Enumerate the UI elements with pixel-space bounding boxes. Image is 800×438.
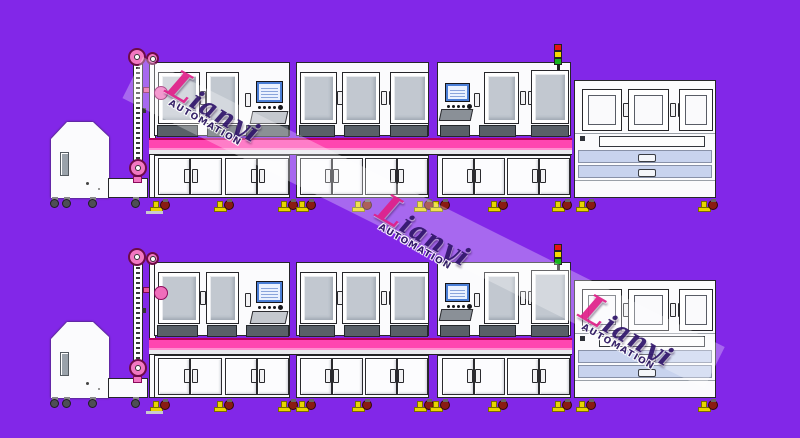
lower-module-2 — [296, 155, 429, 198]
lower-window-panel — [390, 125, 428, 137]
station-rail-line — [575, 380, 715, 381]
drawer-handle — [638, 169, 656, 177]
tower-pole — [557, 265, 560, 270]
upper-module-3 — [437, 262, 571, 336]
door-handle — [184, 169, 190, 183]
door-handle — [259, 169, 265, 183]
caster-wheel — [488, 198, 508, 212]
lower-window-panel — [344, 125, 380, 137]
elevator-sensor — [142, 108, 146, 113]
elevator-column — [133, 56, 143, 170]
door-handle — [467, 169, 473, 183]
hmi-screen — [256, 281, 283, 303]
tower-pole — [557, 65, 560, 70]
door-handle — [381, 291, 387, 305]
hmi-buttons — [258, 105, 283, 110]
door-handle-pair — [390, 169, 404, 183]
station-latch — [580, 136, 585, 141]
machine-window — [532, 71, 568, 123]
production-line — [0, 242, 800, 437]
hopper-sight-slot — [60, 352, 69, 376]
elevator-mount — [133, 376, 142, 383]
tower-lamp-yellow — [554, 51, 562, 58]
elevator-pulley-top — [128, 248, 146, 266]
hopper-sight-slot — [60, 152, 69, 176]
door-handle — [259, 369, 265, 383]
door-handle-pair — [325, 369, 339, 383]
tower-lamp-yellow — [554, 251, 562, 258]
hopper-caster — [131, 197, 141, 209]
lower-window-panel — [207, 325, 237, 337]
tower-lamp-green — [554, 58, 562, 65]
station-drawer — [578, 350, 712, 363]
tower-lamp-green — [554, 258, 562, 265]
caster-wheel — [488, 398, 508, 412]
lower-window-panel — [531, 325, 569, 337]
door-handle — [540, 169, 546, 183]
cabinet — [158, 158, 222, 195]
door-handle — [475, 369, 481, 383]
door-handle — [474, 93, 480, 107]
hopper-caster — [88, 197, 98, 209]
caster-wheel — [552, 398, 572, 412]
upper-module-2 — [296, 262, 429, 336]
machine-window — [391, 273, 428, 323]
hopper-caster — [131, 397, 141, 409]
caster-wheel — [150, 398, 170, 412]
cabinet — [225, 358, 289, 395]
cabinet — [442, 158, 505, 195]
machine-window — [532, 271, 568, 323]
door-handle — [245, 93, 251, 107]
upper-module-2 — [296, 62, 429, 136]
hopper-dot — [98, 188, 100, 190]
door-handle-pair — [251, 369, 265, 383]
machine-window — [207, 73, 238, 123]
lower-window-panel — [157, 325, 198, 337]
hmi-screen — [445, 283, 470, 302]
tower-lamp-red — [554, 44, 562, 51]
door-handle-pair — [184, 369, 198, 383]
door-handle — [325, 369, 331, 383]
station-rail-line — [575, 133, 715, 134]
caster-wheel — [352, 398, 372, 412]
door-handle — [670, 103, 676, 117]
floor-marker-dash — [146, 211, 163, 214]
feeder-hopper — [51, 322, 109, 398]
door-handle — [532, 169, 538, 183]
station-window — [679, 89, 713, 131]
door-handle — [520, 91, 526, 105]
caster-wheel — [576, 198, 596, 212]
caster-wheel — [698, 198, 718, 212]
lower-module-1 — [154, 355, 290, 398]
elevator-chain — [136, 58, 140, 164]
tower-lamp-red — [554, 244, 562, 251]
end-station — [574, 280, 716, 398]
upper-module-1 — [154, 62, 290, 136]
drawer-handle — [638, 354, 656, 362]
door-handle-pair — [184, 169, 198, 183]
caster-wheel — [214, 398, 234, 412]
door-handle — [390, 369, 396, 383]
lower-window-panel — [479, 325, 516, 337]
keyboard-tray — [250, 111, 289, 124]
conveyor-band — [149, 138, 572, 150]
conveyor-band — [149, 338, 572, 350]
door-handle — [474, 293, 480, 307]
door-handle — [245, 293, 251, 307]
door-handle — [251, 169, 257, 183]
door-handle — [474, 293, 480, 307]
production-line — [0, 42, 800, 237]
lower-window-panel — [440, 325, 470, 337]
elevator-mount — [133, 176, 142, 183]
station-window — [628, 89, 669, 131]
station-drawer — [578, 365, 712, 378]
hmi-screen — [445, 83, 470, 102]
door-handle-pair — [467, 369, 481, 383]
door-handle-pair — [390, 369, 404, 383]
door-handle — [520, 291, 526, 305]
machine-window — [485, 273, 518, 323]
door-handle — [251, 369, 257, 383]
elevator-pulley-top — [128, 48, 146, 66]
door-handle — [325, 169, 331, 183]
cabinet — [442, 358, 505, 395]
lower-window-panel — [344, 325, 380, 337]
station-window — [582, 289, 622, 331]
conveyor-rail — [149, 350, 572, 355]
machine-line-top — [0, 42, 800, 237]
cabinet — [225, 158, 289, 195]
hopper-caster — [50, 397, 60, 409]
door-handle — [398, 169, 404, 183]
door-handle-pair — [467, 169, 481, 183]
cabinet — [507, 158, 570, 195]
station-rail-line — [575, 180, 715, 181]
station-drawer — [578, 165, 712, 178]
cabinet — [507, 358, 570, 395]
signal-tower-light — [554, 44, 562, 70]
hopper-caster — [88, 397, 98, 409]
door-handle — [200, 91, 206, 105]
station-latch — [580, 336, 585, 341]
hmi-screen — [256, 81, 283, 103]
keyboard-tray — [439, 309, 474, 321]
machine-window — [485, 73, 518, 123]
caster-wheel — [296, 398, 316, 412]
door-handle — [474, 93, 480, 107]
lower-module-3 — [437, 155, 571, 198]
lower-module-3 — [437, 355, 571, 398]
caster-wheel — [698, 398, 718, 412]
elevator-sensor — [142, 308, 146, 313]
elevator-chain — [136, 258, 140, 364]
drawer-handle — [638, 369, 656, 377]
station-recess — [599, 336, 705, 347]
cabinet — [365, 358, 428, 395]
hopper-caster — [62, 197, 72, 209]
machine-window — [391, 73, 428, 123]
door-handle — [532, 369, 538, 383]
upper-module-1 — [154, 262, 290, 336]
station-window — [679, 289, 713, 331]
lower-window-panel — [299, 325, 335, 337]
lower-window-panel — [246, 325, 289, 337]
lower-window-panel — [390, 325, 428, 337]
caster-wheel — [552, 198, 572, 212]
keyboard-tray — [439, 109, 474, 121]
door-handle — [670, 303, 676, 317]
machine-window — [207, 273, 238, 323]
cad-screenshot: Lianyi AUTOMATION Lianyi AUTOMATION Lian… — [0, 0, 800, 438]
door-handle — [475, 169, 481, 183]
door-handle — [390, 169, 396, 183]
hopper-dot — [86, 182, 89, 185]
elevator-pulley-top-small — [146, 252, 159, 265]
machine-window — [301, 273, 336, 323]
caster-wheel — [214, 198, 234, 212]
hopper-outfeed-shelf — [108, 378, 148, 398]
hopper-outfeed-shelf — [108, 178, 148, 198]
lower-window-panel — [299, 125, 335, 137]
end-station — [574, 80, 716, 198]
feeder-disc — [154, 86, 168, 100]
lower-module-1 — [154, 155, 290, 198]
lower-window-panel — [440, 125, 470, 137]
station-drawer — [578, 150, 712, 163]
door-handle — [467, 369, 473, 383]
drawer-handle — [638, 154, 656, 162]
lower-window-panel — [531, 125, 569, 137]
cabinet — [300, 358, 363, 395]
caster-wheel — [430, 198, 450, 212]
cabinet — [158, 358, 222, 395]
elevator-pulley-bottom — [129, 159, 147, 177]
door-handle — [245, 293, 251, 307]
station-rail-line — [575, 333, 715, 334]
lower-module-2 — [296, 355, 429, 398]
station-window — [628, 289, 669, 331]
machine-line-bottom — [0, 242, 800, 437]
door-handle — [245, 93, 251, 107]
lower-window-panel — [207, 125, 237, 137]
signal-tower-light — [554, 244, 562, 270]
caster-wheel — [576, 398, 596, 412]
floor-marker-dash — [146, 411, 163, 414]
lower-window-panel — [246, 125, 289, 137]
door-handle — [540, 369, 546, 383]
elevator-pulley-top-small — [146, 52, 159, 65]
door-handle-pair — [532, 169, 546, 183]
station-recess — [599, 136, 705, 147]
caster-wheel — [430, 398, 450, 412]
hmi-buttons — [258, 305, 283, 310]
caster-wheel — [278, 198, 298, 212]
hopper-dot — [98, 388, 100, 390]
door-handle-pair — [251, 169, 265, 183]
elevator-pulley-bottom — [129, 359, 147, 377]
door-handle — [333, 169, 339, 183]
door-handle — [381, 91, 387, 105]
door-handle-pair — [532, 369, 546, 383]
upper-module-3 — [437, 62, 571, 136]
feeder-disc — [154, 286, 168, 300]
door-handle — [333, 369, 339, 383]
lower-window-panel — [157, 125, 198, 137]
caster-wheel — [278, 398, 298, 412]
keyboard-tray — [250, 311, 289, 324]
door-handle-pair — [325, 169, 339, 183]
machine-window — [301, 73, 336, 123]
hopper-dot — [86, 382, 89, 385]
machine-window — [343, 73, 379, 123]
cabinet — [300, 158, 363, 195]
machine-window — [343, 273, 379, 323]
feeder-hopper — [51, 122, 109, 198]
station-window — [582, 89, 622, 131]
caster-wheel — [352, 198, 372, 212]
caster-wheel — [296, 198, 316, 212]
cabinet — [365, 158, 428, 195]
conveyor-rail — [149, 150, 572, 155]
caster-wheel — [150, 198, 170, 212]
lower-window-panel — [479, 125, 516, 137]
hopper-caster — [62, 397, 72, 409]
door-handle — [192, 369, 198, 383]
hopper-caster — [50, 197, 60, 209]
elevator-column — [133, 256, 143, 370]
door-handle — [192, 169, 198, 183]
door-handle — [200, 291, 206, 305]
door-handle — [398, 369, 404, 383]
door-handle — [184, 369, 190, 383]
